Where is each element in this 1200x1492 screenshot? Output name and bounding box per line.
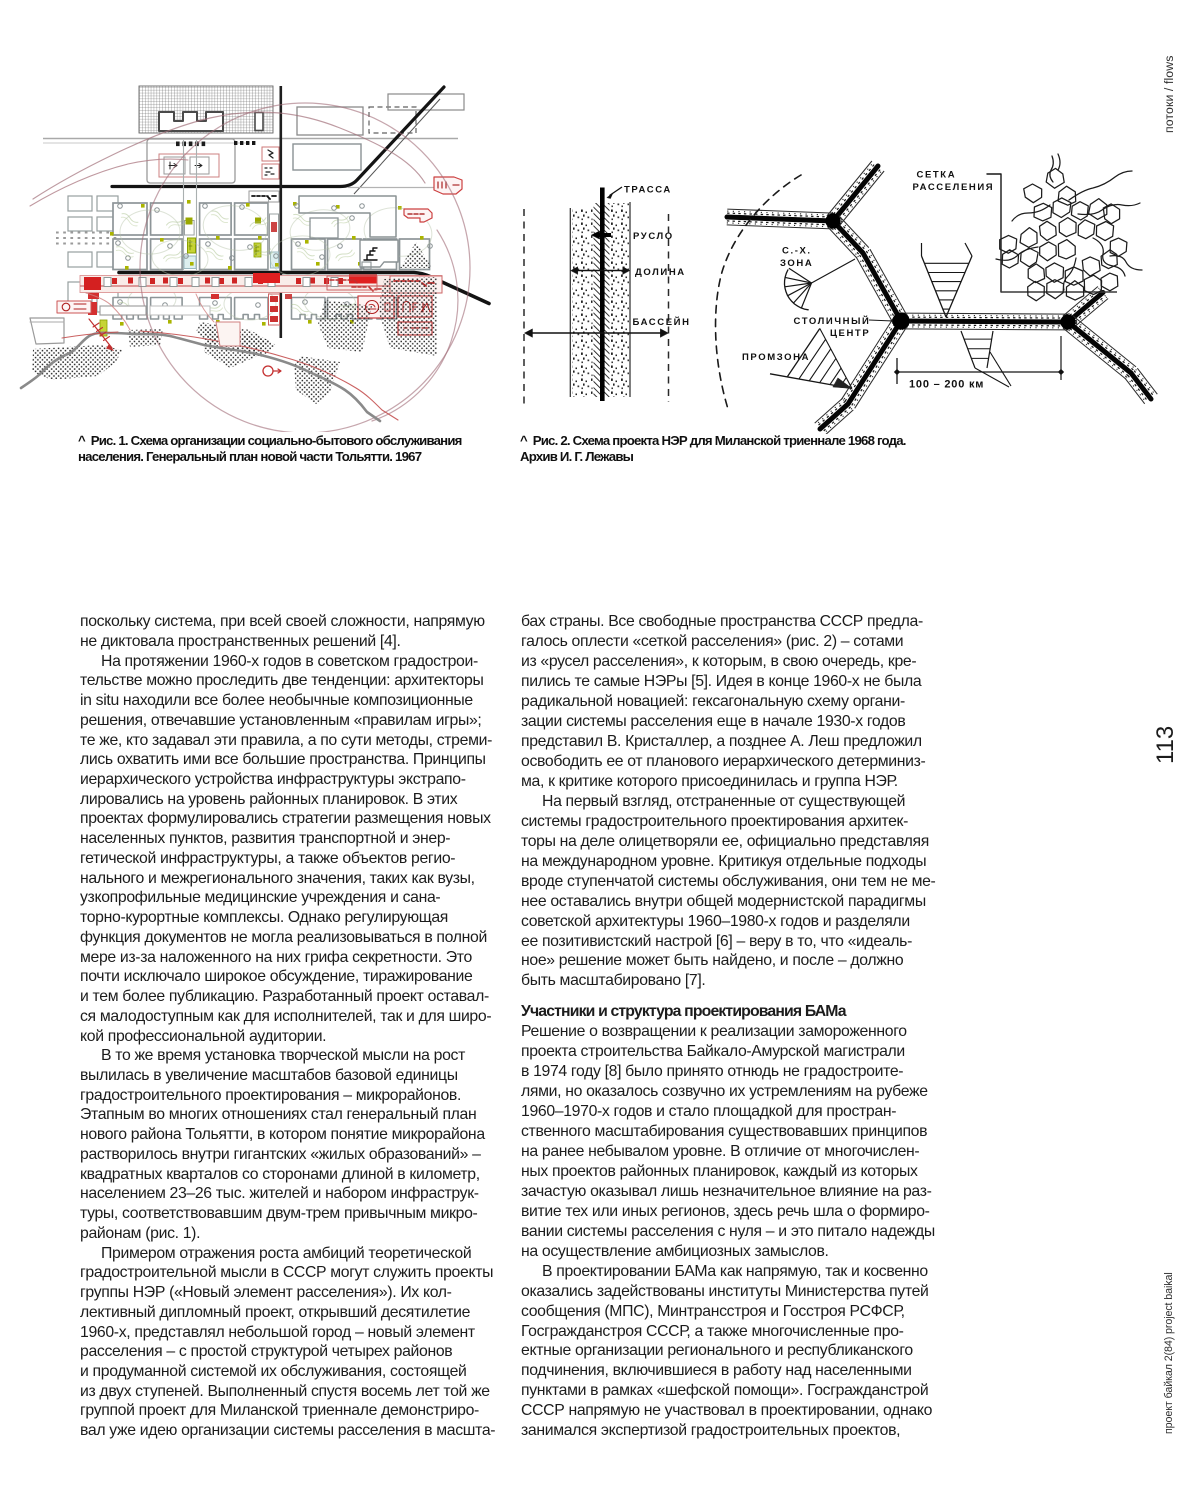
svg-text:ПРОМЗОНА: ПРОМЗОНА (742, 352, 810, 363)
svg-text:РУСЛО: РУСЛО (633, 231, 674, 242)
svg-text:СТОЛИЧНЫЙ: СТОЛИЧНЫЙ (794, 315, 871, 327)
svg-text:ЦЕНТР: ЦЕНТР (830, 328, 870, 339)
svg-text:С.-Х.: С.-Х. (782, 246, 812, 257)
svg-text:100 – 200 км: 100 – 200 км (909, 379, 984, 391)
svg-text:СЕТКА: СЕТКА (917, 170, 957, 181)
svg-text:ЗОНА: ЗОНА (780, 258, 813, 269)
svg-text:РАССЕЛЕНИЯ: РАССЕЛЕНИЯ (913, 182, 995, 193)
svg-text:БАССЕЙН: БАССЕЙН (633, 316, 691, 328)
svg-text:ДОЛИНА: ДОЛИНА (635, 267, 686, 278)
svg-text:ТРАССА: ТРАССА (624, 185, 672, 196)
